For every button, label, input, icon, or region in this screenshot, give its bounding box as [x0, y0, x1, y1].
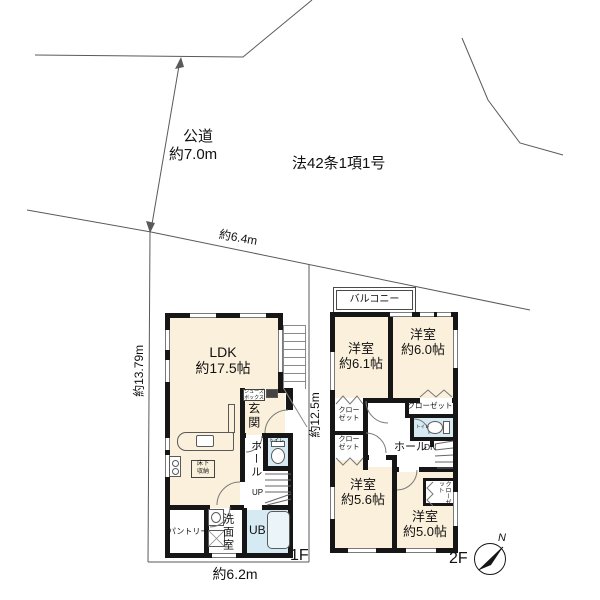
detail-lines-layer [0, 0, 600, 600]
closet-a1-line2: ゼット [335, 415, 363, 423]
floor1-label: 1F [290, 547, 309, 565]
toilet-bowl-1f [271, 448, 285, 464]
window [437, 312, 451, 317]
wall [388, 312, 393, 403]
room-c-size: 約5.6帖 [334, 493, 392, 508]
site-lines-layer [0, 0, 600, 600]
wall [363, 455, 369, 460]
washroom-label: 洗面室 [221, 513, 234, 552]
window [165, 330, 170, 350]
closet-d-label: クローゼット [436, 481, 450, 505]
dim-west-label: 約13.79m [133, 325, 147, 417]
ldk-size: 約17.5帖 [180, 360, 266, 376]
stove-burner [172, 460, 179, 467]
window [406, 548, 436, 553]
compass-north-label: N [498, 532, 506, 545]
wall [410, 414, 414, 437]
hall-2f-label: ホール [394, 441, 427, 454]
shoe-box-label: シューズ ボックス [243, 389, 265, 401]
underfloor-line1: 床下 [192, 461, 214, 469]
room-a-label: 洋室 約6.1帖 [334, 342, 388, 372]
room-a-name: 洋室 [334, 342, 388, 357]
wall [395, 467, 399, 472]
bathtub [267, 511, 290, 549]
pantry-label: パントリー [168, 527, 206, 536]
room-d-size: 約5.0帖 [396, 525, 454, 540]
window [453, 330, 458, 368]
window [348, 548, 376, 553]
dim-frontage-label: 約6.4m [218, 228, 259, 249]
window [390, 312, 412, 317]
ldk-name: LDK [180, 344, 266, 360]
toilet-2f-label: トイレ [416, 424, 430, 429]
balcony: バルコニー [333, 287, 416, 313]
hall-1f-label: ホール [249, 440, 262, 479]
kitchen-counter-arm [228, 404, 235, 433]
ldk-label: LDK 約17.5帖 [180, 344, 266, 376]
closet-a1-line1: クロー [335, 407, 363, 415]
wall [330, 431, 368, 435]
window [420, 312, 434, 317]
wall [242, 508, 247, 553]
lot-boundary-west [148, 232, 150, 562]
stove [169, 456, 181, 477]
balcony-rail: バルコニー [336, 290, 413, 310]
toilet-tank-2f [443, 421, 450, 434]
room-c-name: 洋室 [334, 478, 392, 493]
entrance-label: 玄関 [246, 402, 260, 430]
road-name-label: 公道 [170, 128, 226, 145]
floor-plan-page: バルコニー [0, 0, 600, 600]
storage-box [266, 389, 278, 398]
wall [262, 505, 293, 510]
room-b-size: 約6.0帖 [394, 343, 452, 358]
stairs-up-label: UP [252, 488, 263, 497]
window [165, 360, 170, 382]
window [240, 313, 266, 318]
washing-machine-drum [211, 512, 221, 523]
floor2-label: 2F [449, 550, 468, 568]
stove-burner [172, 468, 179, 475]
wall [263, 435, 268, 468]
closet-a2-label: クロー ゼット [335, 436, 363, 452]
closet-a1-label: クロー ゼット [335, 407, 363, 423]
wall [419, 467, 458, 472]
dim-east-label: 約12.5m [309, 376, 323, 454]
compass [474, 543, 506, 575]
bath-label: UB [249, 524, 266, 538]
wall [263, 466, 293, 471]
room-b-label: 洋室 約6.0帖 [394, 328, 452, 358]
window [165, 438, 170, 450]
underfloor-line2: 収納 [192, 469, 214, 477]
shoe-box-line2: ボックス [244, 396, 264, 402]
stairs-down-treads [435, 441, 453, 468]
closet-a2-line2: ゼット [335, 444, 363, 452]
road-classification-label: 法42条1項1号 [292, 155, 385, 172]
room-a-size: 約6.1帖 [334, 357, 388, 372]
room-d-label: 洋室 約5.0帖 [396, 510, 454, 540]
balcony-label: バルコニー [350, 294, 400, 306]
window [190, 313, 216, 318]
window [212, 553, 236, 558]
closet-a2-line1: クロー [335, 436, 363, 444]
boundary-line-northeast [462, 38, 563, 155]
kitchen-sink [196, 435, 214, 447]
entrance-steps [283, 325, 306, 389]
wall [240, 433, 246, 438]
wall [286, 391, 293, 410]
underfloor-storage-label: 床下 収納 [191, 460, 215, 478]
closet-b-label: クローゼット [407, 402, 453, 411]
toilet-1f-label: トイレ [269, 439, 284, 445]
room-d-name: 洋室 [396, 510, 454, 525]
stairs-down-label: DN [424, 443, 436, 453]
room-b-name: 洋室 [394, 328, 452, 343]
road-arrowhead-bottom [146, 221, 155, 233]
road-width-label: 約7.0m [158, 146, 228, 163]
road-arrowhead-top [175, 57, 184, 69]
dim-south-label: 約6.2m [203, 566, 267, 582]
boundary-line-west-upper [27, 210, 151, 232]
boundary-line-north [35, 0, 312, 57]
room-c-label: 洋室 約5.6帖 [334, 478, 392, 508]
